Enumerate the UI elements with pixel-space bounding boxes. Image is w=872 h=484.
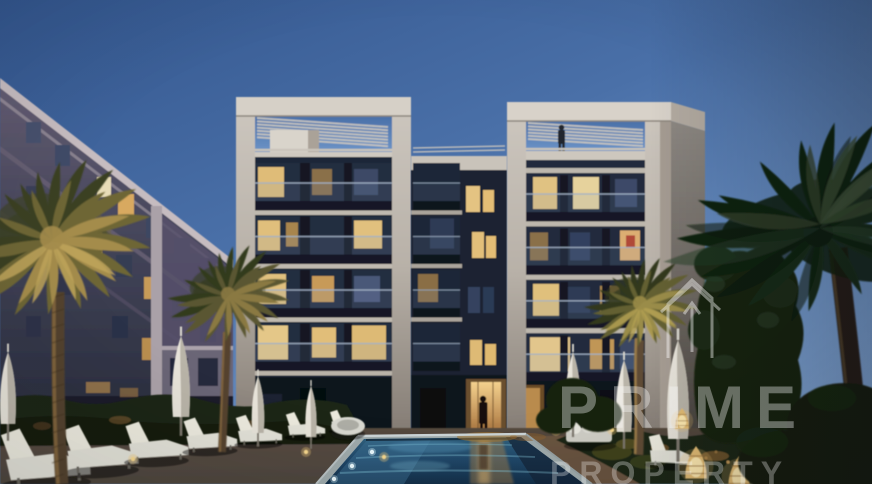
svg-text:PROPERTY: PROPERTY [550,455,790,484]
svg-text:PRIME: PRIME [558,374,808,441]
